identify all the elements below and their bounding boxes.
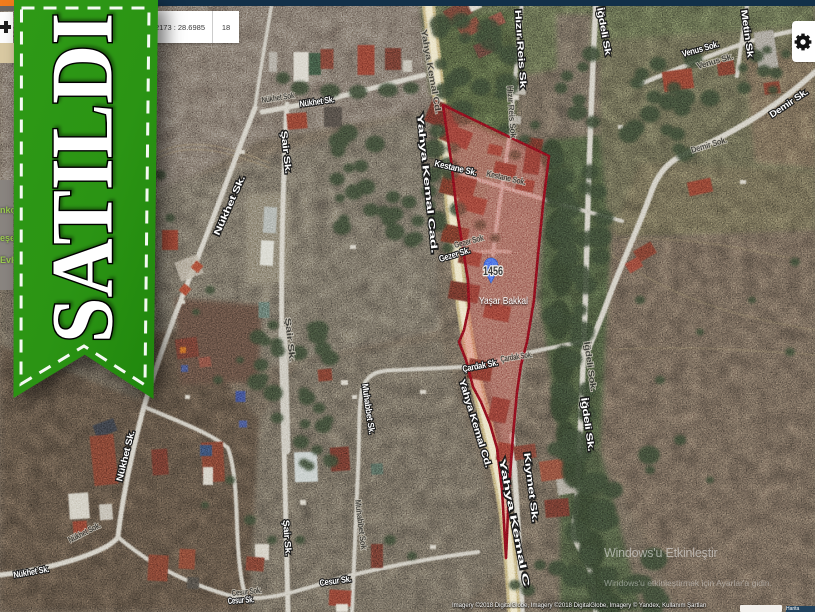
svg-text:SATILDI: SATILDI [35, 13, 132, 343]
